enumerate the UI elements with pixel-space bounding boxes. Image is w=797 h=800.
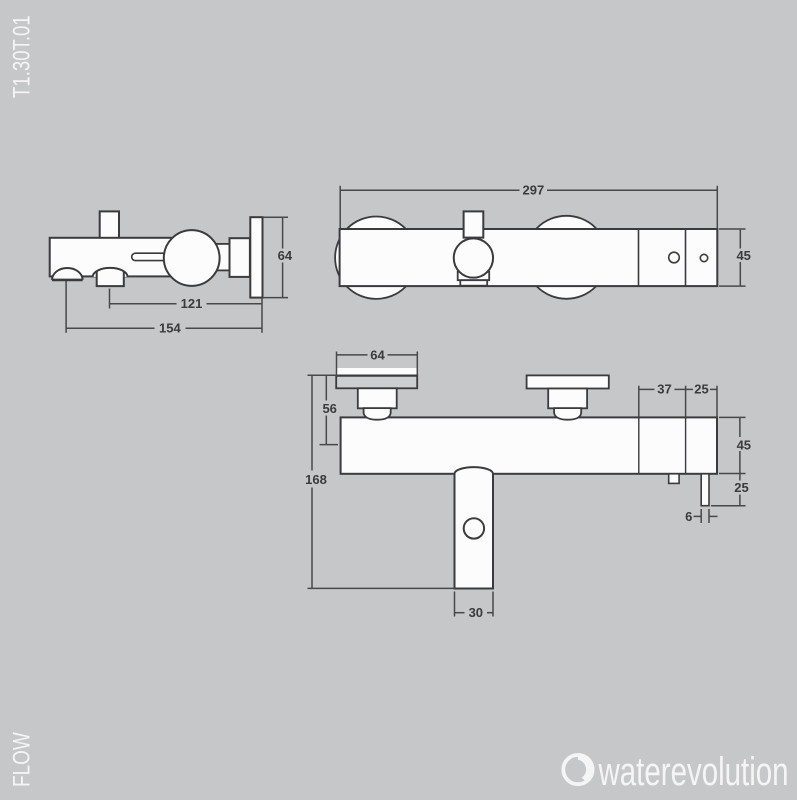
svg-text:168: 168 (305, 472, 327, 487)
svg-text:T1.30T.01: T1.30T.01 (8, 15, 35, 98)
svg-text:45: 45 (736, 248, 750, 263)
svg-text:37: 37 (657, 381, 671, 396)
svg-text:154: 154 (159, 321, 181, 336)
svg-text:FLOW: FLOW (7, 732, 35, 787)
svg-text:56: 56 (322, 401, 336, 416)
svg-text:64: 64 (370, 347, 385, 362)
svg-text:6: 6 (685, 509, 692, 524)
svg-text:121: 121 (181, 296, 203, 311)
svg-text:297: 297 (523, 183, 545, 198)
svg-text:waterevolution: waterevolution (598, 750, 789, 794)
svg-text:64: 64 (278, 248, 293, 263)
svg-text:25: 25 (734, 480, 748, 495)
svg-text:30: 30 (469, 605, 483, 620)
svg-text:25: 25 (694, 381, 708, 396)
svg-text:45: 45 (737, 437, 751, 452)
